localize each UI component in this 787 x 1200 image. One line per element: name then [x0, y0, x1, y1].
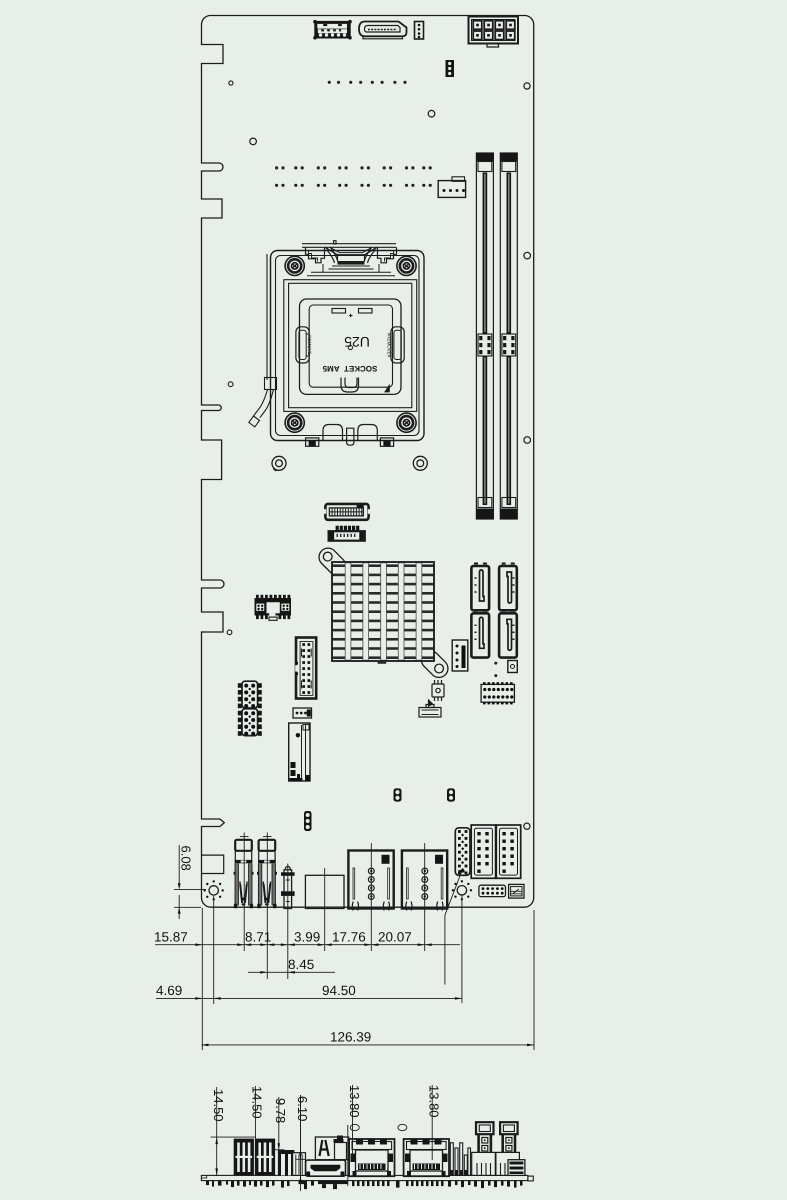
svg-text:17.76: 17.76 — [332, 930, 366, 945]
svg-text:9.78: 9.78 — [273, 1098, 288, 1123]
svg-text:15.87: 15.87 — [154, 930, 188, 945]
svg-text:SOCKET AM5: SOCKET AM5 — [322, 364, 377, 373]
svg-text:6.08: 6.08 — [178, 846, 193, 871]
svg-text:8.45: 8.45 — [288, 957, 314, 972]
svg-text:13.80: 13.80 — [347, 1085, 362, 1118]
svg-text:6.10: 6.10 — [295, 1096, 310, 1121]
svg-text:3.99: 3.99 — [294, 930, 320, 945]
svg-text:8.71: 8.71 — [245, 930, 271, 945]
svg-text:20.07: 20.07 — [378, 930, 412, 945]
svg-text:126.39: 126.39 — [330, 1030, 371, 1045]
svg-text:14.50: 14.50 — [250, 1086, 265, 1119]
svg-text:13.80: 13.80 — [427, 1085, 442, 1118]
svg-text:4.69: 4.69 — [156, 983, 182, 998]
svg-text:94.50: 94.50 — [322, 983, 356, 998]
svg-text:14.50: 14.50 — [211, 1089, 226, 1122]
